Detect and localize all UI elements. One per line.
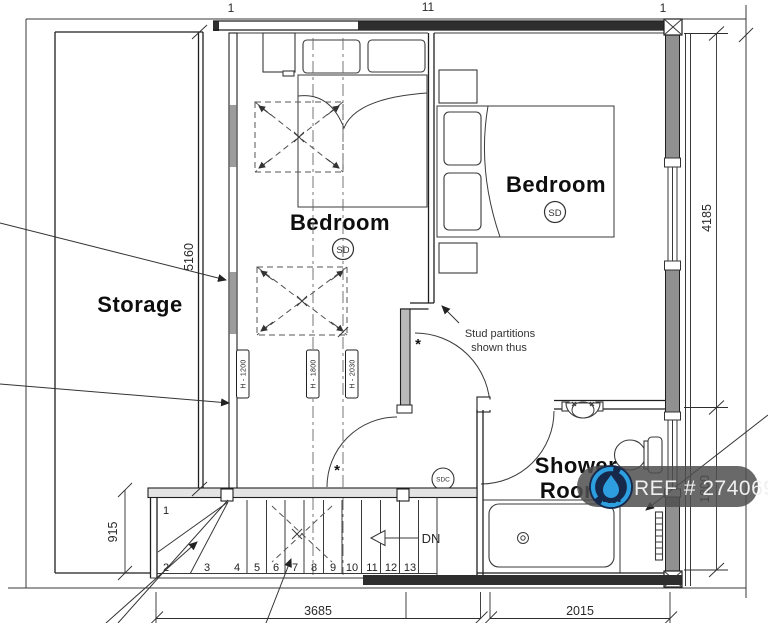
- note-leader: [442, 306, 459, 323]
- top-label-1b: 1: [660, 1, 667, 15]
- bath-tub: [489, 504, 614, 567]
- rooflight-2: [257, 267, 347, 335]
- stair-top-wall: [148, 488, 477, 498]
- tread-number: 6: [273, 562, 279, 574]
- corner-arrow-icon: [331, 271, 343, 280]
- window-cap: [665, 261, 681, 270]
- south-wall-solid: [363, 575, 682, 585]
- floor-plan-drawing: Storage Bedroom SD: [0, 0, 768, 623]
- dim-915: 915: [106, 522, 120, 543]
- dim-4185: 4185: [700, 204, 714, 232]
- east-wall-solid: [666, 497, 680, 571]
- tread-number: 1: [163, 505, 169, 517]
- pillow: [444, 112, 481, 165]
- dim-5160: 5160: [182, 243, 196, 271]
- tread-number: 5: [254, 562, 260, 574]
- north-wall-solid: [358, 22, 672, 31]
- tread-number: 4: [234, 562, 240, 574]
- corner-arrow-icon: [259, 159, 271, 168]
- towel-radiator: [656, 512, 663, 560]
- top-edge-labels: 1 11 1: [228, 0, 667, 15]
- pillow: [368, 40, 425, 72]
- height-label-1200: H - 1200: [241, 359, 248, 388]
- height-label-2030: H - 2030: [350, 359, 357, 388]
- dim-3685: 3685: [304, 604, 332, 618]
- tread-number: 12: [385, 562, 397, 574]
- height-label-1800: H - 1800: [311, 359, 318, 388]
- door-opening: [489, 400, 554, 411]
- east-wall-solid: [666, 35, 680, 158]
- sd-right-label: SD: [548, 208, 561, 219]
- post-top-right: [664, 19, 682, 35]
- leader-stair-1: [106, 542, 197, 623]
- north-wall: [213, 21, 672, 33]
- bedroom-left-label: Bedroom: [290, 210, 390, 235]
- tread-number: 11: [366, 562, 377, 574]
- cabinet-knob: [283, 71, 294, 76]
- stud-hatch-1: [230, 105, 236, 167]
- corner-arrow-icon: [261, 322, 273, 331]
- storage-label: Storage: [97, 292, 182, 317]
- window-bedroom: [665, 158, 681, 270]
- stud-note-line1: Stud partitions: [465, 328, 536, 340]
- sink-bowl: [566, 403, 600, 418]
- corner-arrow-icon: [327, 159, 339, 168]
- stud-wall-body: [229, 33, 237, 497]
- down-direction: DN: [371, 531, 440, 547]
- stud-note-line2: shown thus: [471, 342, 527, 354]
- stud-hatch-2: [230, 272, 236, 334]
- tread-number: 8: [311, 562, 317, 574]
- door-asterisk: *: [415, 336, 421, 353]
- corner-arrow-icon: [261, 271, 273, 280]
- tread-number: 7: [292, 562, 298, 574]
- bedside-cabinet: [263, 33, 295, 72]
- tread-number: 10: [346, 562, 358, 574]
- tread-number: 13: [404, 562, 416, 574]
- east-wall-solid: [666, 270, 680, 412]
- tread-number: 9: [330, 562, 336, 574]
- duvet-fold: [484, 106, 500, 237]
- corner-arrow-icon: [331, 322, 343, 331]
- newel-post: [221, 489, 233, 501]
- bedside-cabinet: [439, 70, 477, 103]
- window-cap: [665, 158, 681, 167]
- watermark-ref-text: REF # 2740693: [634, 477, 768, 500]
- rooflight-1: [255, 102, 343, 172]
- pillow: [303, 40, 360, 73]
- leader-storage-wall-2: [0, 384, 229, 403]
- corner-arrow-icon: [259, 106, 271, 115]
- leader-stair-newel: [118, 500, 228, 623]
- floor-plan-page: Storage Bedroom SD: [0, 0, 768, 623]
- door-asterisk: *: [334, 462, 340, 479]
- window-cap: [665, 412, 681, 420]
- door-jamb: [397, 405, 412, 413]
- newel-post: [397, 489, 409, 501]
- dn-arrow-icon: [371, 531, 385, 546]
- dim-2015: 2015: [566, 604, 594, 618]
- dimensions: 5160 915 4185 1800 3685 2015: [106, 25, 728, 623]
- stud-partition-note: Stud partitions shown thus: [442, 306, 536, 354]
- bedroom-right-label: Bedroom: [506, 172, 606, 197]
- top-label-11: 11: [422, 0, 435, 14]
- top-label-1: 1: [228, 1, 235, 15]
- stud-wall-landing: [401, 309, 411, 407]
- bedside-cabinet: [439, 243, 477, 273]
- sdc-label: SDC: [436, 477, 450, 484]
- bath: [483, 500, 620, 573]
- watermark: REF # 2740693: [577, 465, 768, 509]
- dn-label: DN: [422, 531, 441, 546]
- bedroom-right: Bedroom SD: [437, 70, 614, 273]
- pillow: [444, 173, 481, 230]
- sink: [562, 402, 603, 418]
- door-jamb: [477, 397, 490, 412]
- toilet-bowl: [615, 440, 646, 470]
- tread-number: 3: [204, 562, 210, 574]
- stud-wall-west: [229, 33, 237, 497]
